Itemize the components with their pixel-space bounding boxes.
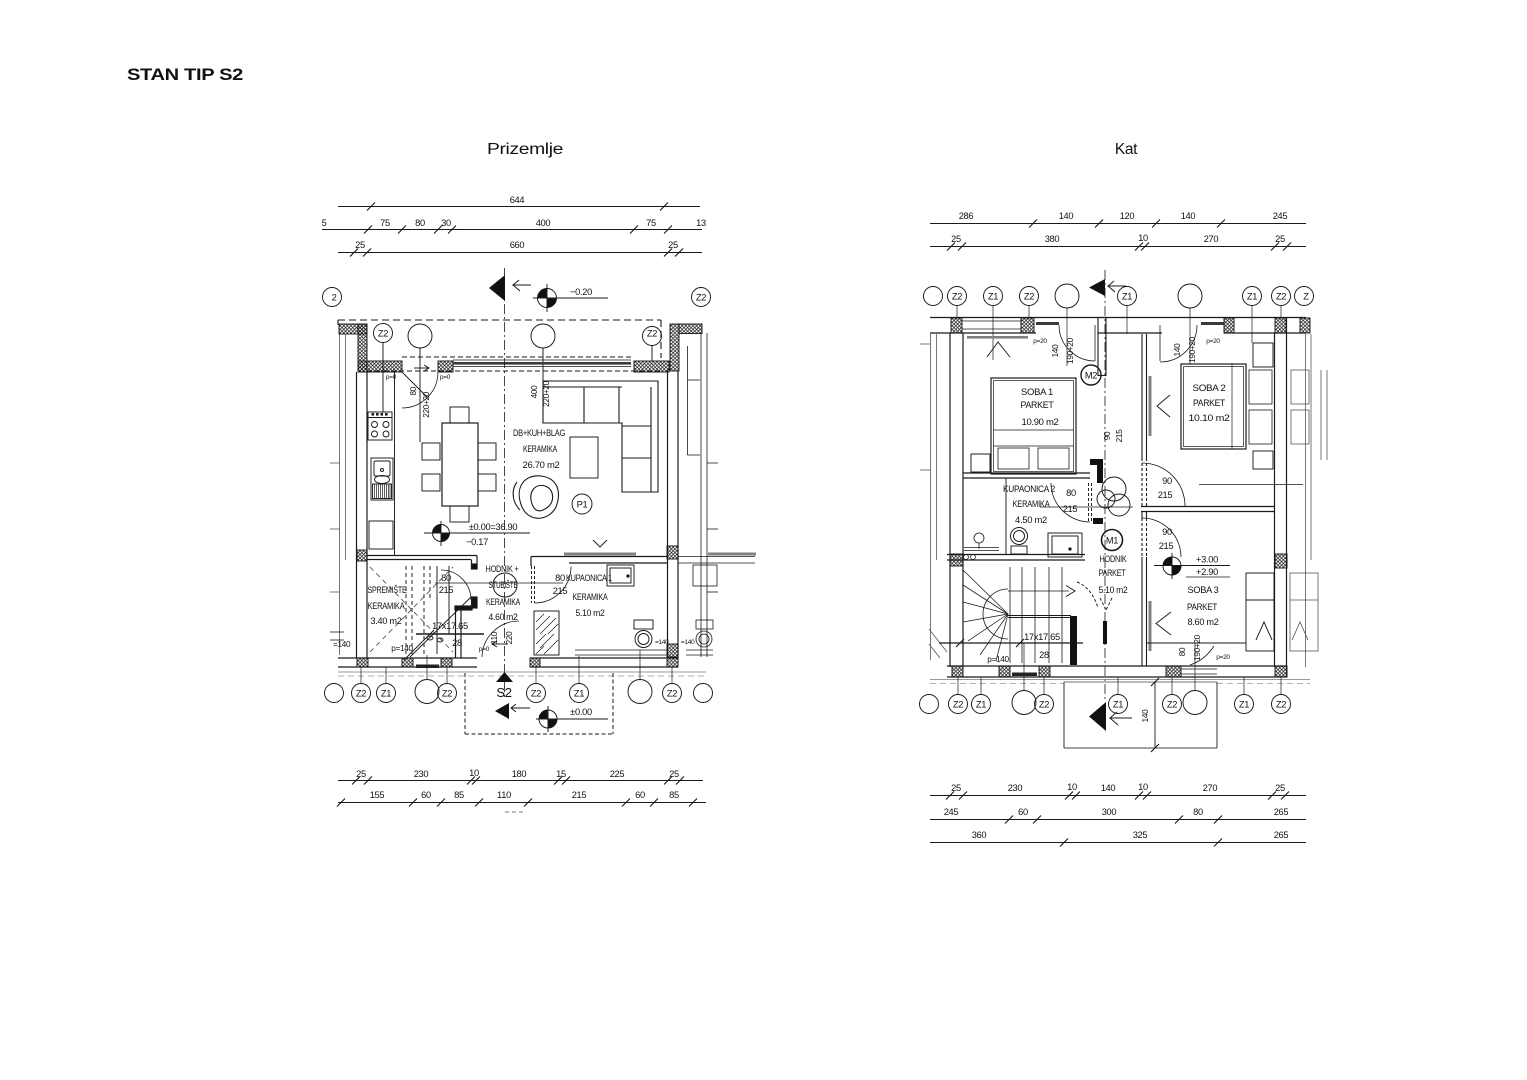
- svg-text:Z2: Z2: [1024, 292, 1034, 302]
- svg-text:S2: S2: [496, 685, 511, 700]
- svg-text:Z2: Z2: [667, 689, 677, 699]
- svg-text:KERAMIKA: KERAMIKA: [486, 597, 521, 607]
- svg-text:Z2: Z2: [1276, 292, 1286, 302]
- svg-text:25: 25: [355, 240, 365, 250]
- svg-text:286: 286: [959, 211, 974, 221]
- svg-text:Z2: Z2: [1039, 700, 1049, 710]
- svg-text:SOBA 3: SOBA 3: [1188, 585, 1219, 595]
- svg-text:SOBA 2: SOBA 2: [1193, 383, 1226, 393]
- svg-text:265: 265: [1274, 830, 1289, 840]
- svg-text:270: 270: [1203, 783, 1218, 793]
- svg-text:KERAMIKA: KERAMIKA: [523, 444, 558, 454]
- svg-text:SPREMIŠTE: SPREMIŠTE: [368, 585, 407, 595]
- svg-text:Z2: Z2: [442, 689, 452, 699]
- svg-text:85: 85: [454, 790, 464, 800]
- svg-text:Z2: Z2: [1276, 700, 1286, 710]
- svg-text:p=20: p=20: [1216, 654, 1230, 661]
- svg-text:215: 215: [572, 790, 587, 800]
- svg-text:=140: =140: [681, 639, 695, 646]
- svg-text:−0.17: −0.17: [466, 537, 488, 547]
- svg-text:80: 80: [1193, 807, 1203, 817]
- svg-text:Z2: Z2: [953, 700, 963, 710]
- svg-text:2: 2: [332, 293, 337, 303]
- svg-text:Z2: Z2: [356, 689, 366, 699]
- svg-text:190+20: 190+20: [1066, 337, 1075, 363]
- svg-text:Z1: Z1: [381, 689, 391, 699]
- svg-text:90: 90: [1162, 476, 1172, 486]
- svg-text:90: 90: [1162, 527, 1172, 537]
- svg-text:25: 25: [668, 240, 678, 250]
- svg-text:10.10 m2: 10.10 m2: [1189, 413, 1230, 423]
- svg-text:Z1: Z1: [1247, 292, 1257, 302]
- svg-text:360: 360: [972, 830, 987, 840]
- svg-text:215: 215: [1159, 541, 1174, 551]
- svg-text:Z1: Z1: [988, 292, 998, 302]
- svg-text:140: 140: [1051, 344, 1060, 358]
- svg-text:225: 225: [610, 769, 625, 779]
- svg-text:10: 10: [1067, 782, 1077, 792]
- svg-text:140: 140: [1173, 343, 1182, 357]
- svg-text:190+20: 190+20: [1188, 336, 1197, 362]
- svg-text:17x17.65: 17x17.65: [1024, 632, 1060, 642]
- svg-text:Z1: Z1: [1122, 292, 1132, 302]
- svg-text:25: 25: [356, 769, 366, 779]
- svg-text:80: 80: [1178, 647, 1187, 656]
- svg-text:PARKET: PARKET: [1099, 568, 1126, 578]
- svg-text:140: 140: [1101, 783, 1116, 793]
- svg-text:60: 60: [635, 790, 645, 800]
- svg-text:DB+KUH+BLAG: DB+KUH+BLAG: [513, 428, 565, 438]
- svg-text:28: 28: [452, 638, 462, 648]
- svg-text:+3.00: +3.00: [1196, 555, 1218, 565]
- svg-text:KERAMIKA: KERAMIKA: [573, 592, 609, 602]
- svg-text:Z: Z: [1303, 292, 1309, 302]
- svg-text:PARKET: PARKET: [1187, 602, 1218, 612]
- svg-text:60: 60: [421, 790, 431, 800]
- svg-text:265: 265: [1274, 807, 1289, 817]
- svg-text:HODNIK: HODNIK: [1100, 554, 1128, 564]
- svg-text:26.70 m2: 26.70 m2: [523, 460, 560, 470]
- svg-text:Z1: Z1: [574, 689, 584, 699]
- svg-text:230: 230: [1008, 783, 1023, 793]
- svg-text:PARKET: PARKET: [1021, 400, 1055, 410]
- svg-text:4.50 m2: 4.50 m2: [1015, 515, 1047, 525]
- svg-text:215: 215: [439, 585, 454, 595]
- svg-text:KERAMIKA: KERAMIKA: [368, 601, 406, 611]
- svg-text:300: 300: [1102, 807, 1117, 817]
- svg-text:400: 400: [530, 385, 539, 399]
- svg-text:KUPAONICA 1: KUPAONICA 1: [566, 573, 612, 583]
- svg-text:Z1: Z1: [976, 700, 986, 710]
- svg-text:25: 25: [1275, 234, 1285, 244]
- svg-text:5.10 m2: 5.10 m2: [1099, 585, 1128, 595]
- svg-text:P1: P1: [577, 500, 588, 510]
- svg-text:215: 215: [1115, 429, 1124, 443]
- svg-text:325: 325: [1133, 830, 1148, 840]
- svg-text:180: 180: [512, 769, 527, 779]
- svg-text:25: 25: [669, 769, 679, 779]
- svg-text:15: 15: [556, 769, 566, 779]
- svg-text:Z1: Z1: [1113, 700, 1123, 710]
- svg-text:215: 215: [553, 586, 568, 596]
- svg-text:Z2: Z2: [952, 292, 962, 302]
- svg-text:80: 80: [415, 218, 425, 228]
- svg-text:5: 5: [322, 218, 327, 228]
- svg-text:Prizemlje: Prizemlje: [487, 141, 563, 158]
- svg-text:13: 13: [696, 218, 706, 228]
- svg-text:p=20: p=20: [1206, 338, 1220, 345]
- svg-text:p=140: p=140: [391, 644, 413, 653]
- svg-text:215: 215: [1158, 490, 1173, 500]
- svg-text:120: 120: [1120, 211, 1135, 221]
- svg-text:400: 400: [536, 218, 551, 228]
- svg-text:25: 25: [1275, 783, 1285, 793]
- svg-text:5.10 m2: 5.10 m2: [576, 608, 605, 618]
- svg-text:=140: =140: [333, 640, 351, 649]
- svg-text:80: 80: [409, 386, 418, 395]
- svg-text:+2.90: +2.90: [1196, 567, 1218, 577]
- svg-text:140: 140: [1059, 211, 1074, 221]
- svg-text:190+20: 190+20: [1193, 634, 1202, 660]
- svg-text:3.40 m2: 3.40 m2: [371, 616, 402, 626]
- svg-text:25: 25: [951, 234, 961, 244]
- svg-text:30: 30: [441, 218, 451, 228]
- svg-text:230: 230: [414, 769, 429, 779]
- svg-text:SOBA 1: SOBA 1: [1021, 387, 1053, 397]
- svg-text:270: 270: [1204, 234, 1219, 244]
- svg-text:M1: M1: [1106, 536, 1118, 546]
- svg-text:Z2: Z2: [1167, 700, 1177, 710]
- svg-text:p=140: p=140: [987, 655, 1009, 664]
- svg-text:4.60 m2: 4.60 m2: [489, 612, 518, 622]
- svg-text:80: 80: [555, 573, 565, 583]
- svg-text:Z2: Z2: [378, 329, 388, 339]
- svg-text:215: 215: [1063, 504, 1078, 514]
- svg-text:KUPAONICA 2: KUPAONICA 2: [1003, 484, 1055, 494]
- svg-text:HODNIK +: HODNIK +: [486, 564, 519, 574]
- svg-text:220: 220: [505, 631, 514, 645]
- svg-text:±0.00=36.90: ±0.00=36.90: [469, 522, 518, 532]
- svg-text:140: 140: [1181, 211, 1196, 221]
- svg-text:90: 90: [1103, 431, 1112, 440]
- svg-text:110: 110: [497, 790, 511, 800]
- svg-text:Kat: Kat: [1115, 141, 1138, 158]
- svg-text:644: 644: [510, 195, 525, 205]
- svg-text:380: 380: [1045, 234, 1060, 244]
- svg-text:PARKET: PARKET: [1193, 398, 1226, 408]
- svg-text:Z1: Z1: [1239, 700, 1249, 710]
- svg-text:660: 660: [510, 240, 525, 250]
- svg-text:10.90 m2: 10.90 m2: [1022, 417, 1059, 427]
- svg-text:85: 85: [669, 790, 679, 800]
- svg-text:8.60 m2: 8.60 m2: [1188, 617, 1219, 627]
- svg-text:245: 245: [1273, 211, 1288, 221]
- svg-text:60: 60: [1018, 807, 1028, 817]
- svg-text:155: 155: [370, 790, 385, 800]
- svg-text:p=0: p=0: [440, 374, 451, 381]
- svg-text:75: 75: [646, 218, 656, 228]
- svg-text:KERAMIKA: KERAMIKA: [1013, 499, 1051, 509]
- svg-text:M2: M2: [1085, 371, 1097, 381]
- svg-text:p=0: p=0: [386, 374, 397, 381]
- svg-text:17x17.65: 17x17.65: [432, 621, 468, 631]
- svg-text:25: 25: [951, 783, 961, 793]
- svg-text:10: 10: [1138, 233, 1148, 243]
- svg-text:75: 75: [380, 218, 390, 228]
- svg-text:=140: =140: [655, 639, 669, 646]
- svg-text:10: 10: [1138, 782, 1148, 792]
- svg-text:Z2: Z2: [531, 689, 541, 699]
- svg-text:245: 245: [944, 807, 959, 817]
- svg-text:p=0: p=0: [479, 646, 490, 653]
- svg-text:80: 80: [1066, 488, 1076, 498]
- svg-text:Z2: Z2: [696, 293, 706, 303]
- svg-text:10: 10: [469, 768, 479, 778]
- svg-text:Z2: Z2: [647, 329, 657, 339]
- svg-text:STAN TIP S2: STAN TIP S2: [127, 65, 243, 84]
- svg-text:−0.20: −0.20: [570, 287, 592, 297]
- svg-text:220+20: 220+20: [422, 391, 431, 417]
- svg-text:28: 28: [1039, 650, 1049, 660]
- svg-text:STUBIŠTE: STUBIŠTE: [489, 580, 518, 590]
- svg-text:140: 140: [1141, 709, 1150, 723]
- svg-text:±0.00: ±0.00: [570, 707, 592, 717]
- svg-text:p=20: p=20: [1033, 338, 1047, 345]
